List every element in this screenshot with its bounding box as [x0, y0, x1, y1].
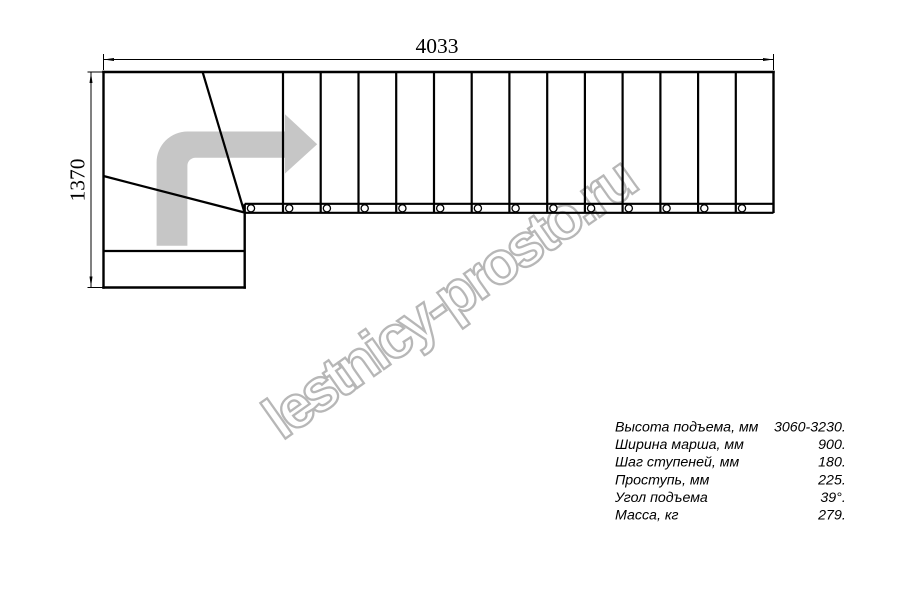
svg-text:Высота подъема, мм: Высота подъема, мм: [615, 420, 759, 436]
svg-text:39°.: 39°.: [820, 490, 845, 506]
svg-text:Шаг ступеней, мм: Шаг ступеней, мм: [615, 455, 739, 471]
svg-text:1370: 1370: [66, 159, 90, 202]
svg-text:4033: 4033: [416, 34, 459, 58]
svg-text:900.: 900.: [818, 437, 846, 453]
svg-text:Масса, кг: Масса, кг: [615, 508, 679, 524]
svg-text:279.: 279.: [817, 508, 846, 524]
svg-text:Ширина марша, мм: Ширина марша, мм: [615, 437, 744, 453]
svg-text:Угол подъема: Угол подъема: [614, 490, 708, 506]
svg-text:180.: 180.: [818, 455, 846, 471]
svg-text:Проступь, мм: Проступь, мм: [615, 472, 710, 488]
svg-text:3060-3230.: 3060-3230.: [774, 420, 846, 436]
svg-text:225.: 225.: [817, 472, 846, 488]
